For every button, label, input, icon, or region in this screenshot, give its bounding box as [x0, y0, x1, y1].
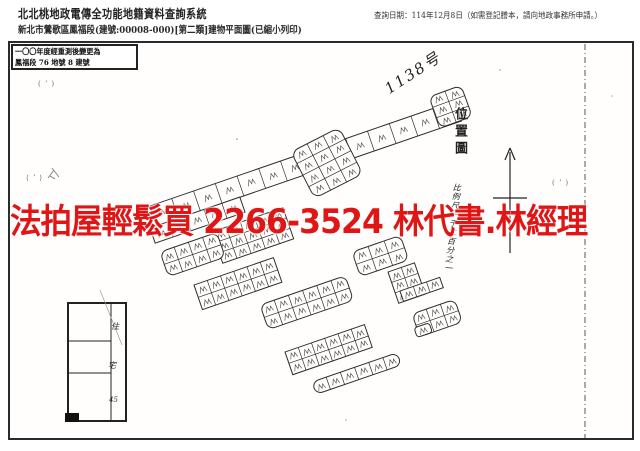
- remeasure-note-line1: 一〇〇年度經重測後變更為: [15, 46, 128, 57]
- pencil-marks: [48, 69, 613, 421]
- floorplan-label-2: 宅: [108, 360, 116, 371]
- stray-mark-1: ( ʼ ): [38, 80, 55, 88]
- remeasure-note-box: 一〇〇年度經重測後變更為 鳳福段 76 地號 8 建號: [11, 44, 138, 70]
- stray-mark-3: ( ʼ ): [552, 179, 569, 187]
- remeasure-note-line2: 鳳福段 76 地號 8 建號: [15, 57, 128, 68]
- floorplan-label-3: 45: [109, 396, 118, 404]
- stray-mark-2: ⟨ ʼ ⟩: [26, 174, 43, 182]
- floorplan-label-1: 住: [111, 321, 119, 332]
- advertisement-watermark: 法拍屋輕鬆買 2266-3524 林代書.林經理: [10, 194, 587, 243]
- location-map-label: 位置圖: [450, 107, 469, 158]
